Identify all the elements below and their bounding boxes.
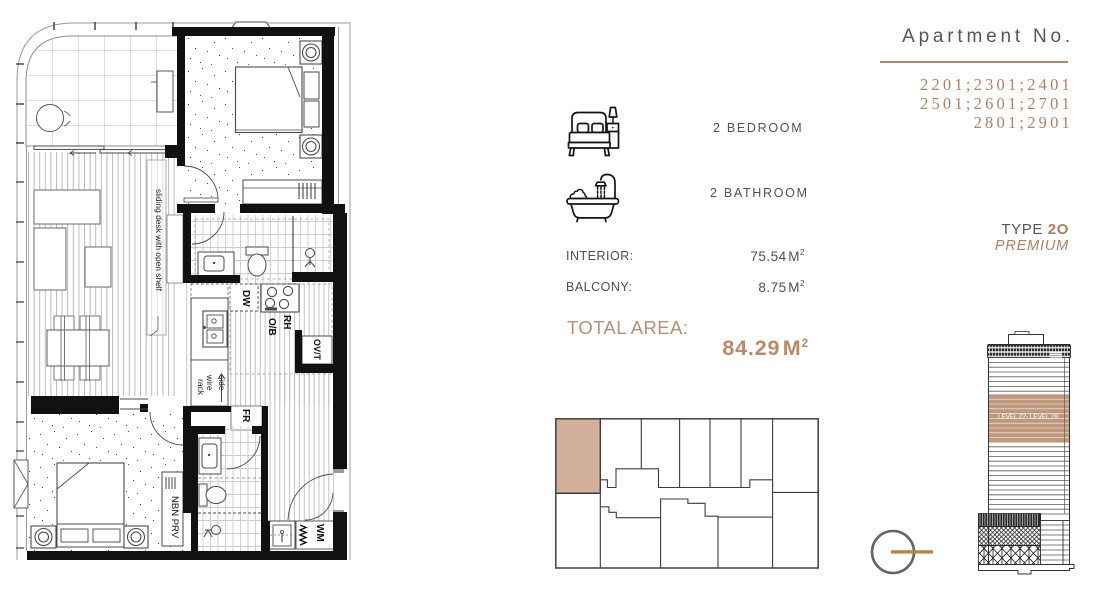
svg-text:wire: wire <box>205 374 215 391</box>
svg-text:NBN PRV: NBN PRV <box>169 496 180 539</box>
svg-text:O/B: O/B <box>266 318 277 336</box>
svg-text:RH: RH <box>281 315 292 329</box>
svg-text:FR: FR <box>240 409 251 423</box>
svg-text:rack: rack <box>196 379 206 396</box>
svg-text:WM: WM <box>314 524 325 542</box>
svg-text:DW: DW <box>240 290 251 307</box>
svg-text:LEVEL 22- LEVEL 29: LEVEL 22- LEVEL 29 <box>998 413 1059 420</box>
svg-text:OV/T: OV/T <box>312 339 322 361</box>
svg-text:side: side <box>217 375 227 391</box>
svg-text:sliding desk with open shelf: sliding desk with open shelf <box>154 189 164 292</box>
